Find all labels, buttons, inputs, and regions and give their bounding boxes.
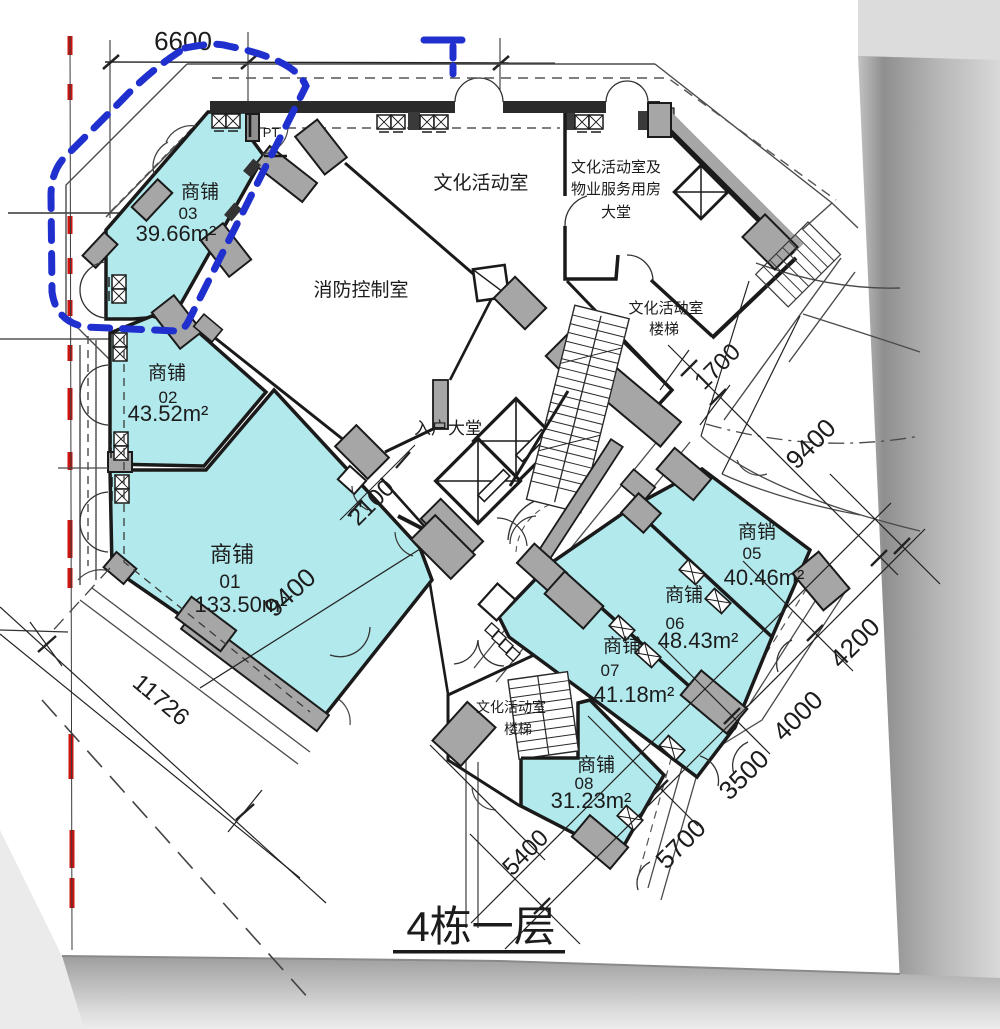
svg-text:4栋一层: 4栋一层 bbox=[406, 903, 555, 950]
svg-text:商铺: 商铺 bbox=[665, 584, 703, 606]
svg-text:大堂: 大堂 bbox=[601, 204, 631, 221]
svg-text:48.43m²: 48.43m² bbox=[658, 628, 739, 653]
svg-text:01: 01 bbox=[219, 572, 240, 593]
svg-text:文化活动室: 文化活动室 bbox=[628, 300, 703, 317]
svg-text:消防控制室: 消防控制室 bbox=[313, 279, 408, 301]
svg-text:商铺: 商铺 bbox=[603, 635, 641, 657]
svg-text:07: 07 bbox=[601, 661, 620, 680]
svg-text:文化活动室及: 文化活动室及 bbox=[571, 159, 661, 176]
svg-text:商销: 商销 bbox=[738, 521, 776, 543]
svg-text:商铺: 商铺 bbox=[577, 754, 615, 776]
svg-text:41.18m²: 41.18m² bbox=[594, 682, 675, 707]
svg-text:39.66m²: 39.66m² bbox=[136, 221, 217, 246]
svg-text:40.46m²: 40.46m² bbox=[724, 565, 805, 590]
svg-text:商铺: 商铺 bbox=[148, 362, 186, 384]
svg-text:物业服务用房: 物业服务用房 bbox=[571, 181, 661, 198]
svg-text:入户大堂: 入户大堂 bbox=[414, 419, 482, 438]
svg-text:楼梯: 楼梯 bbox=[649, 321, 679, 338]
svg-text:05: 05 bbox=[743, 544, 762, 563]
svg-text:文化活动室: 文化活动室 bbox=[433, 172, 528, 194]
svg-text:楼梯: 楼梯 bbox=[504, 721, 532, 737]
svg-text:商铺: 商铺 bbox=[210, 542, 254, 567]
svg-text:商铺: 商铺 bbox=[181, 181, 219, 203]
svg-text:31.23m²: 31.23m² bbox=[551, 788, 632, 813]
svg-text:文化活动室: 文化活动室 bbox=[476, 699, 546, 715]
svg-text:43.52m²: 43.52m² bbox=[128, 401, 209, 426]
